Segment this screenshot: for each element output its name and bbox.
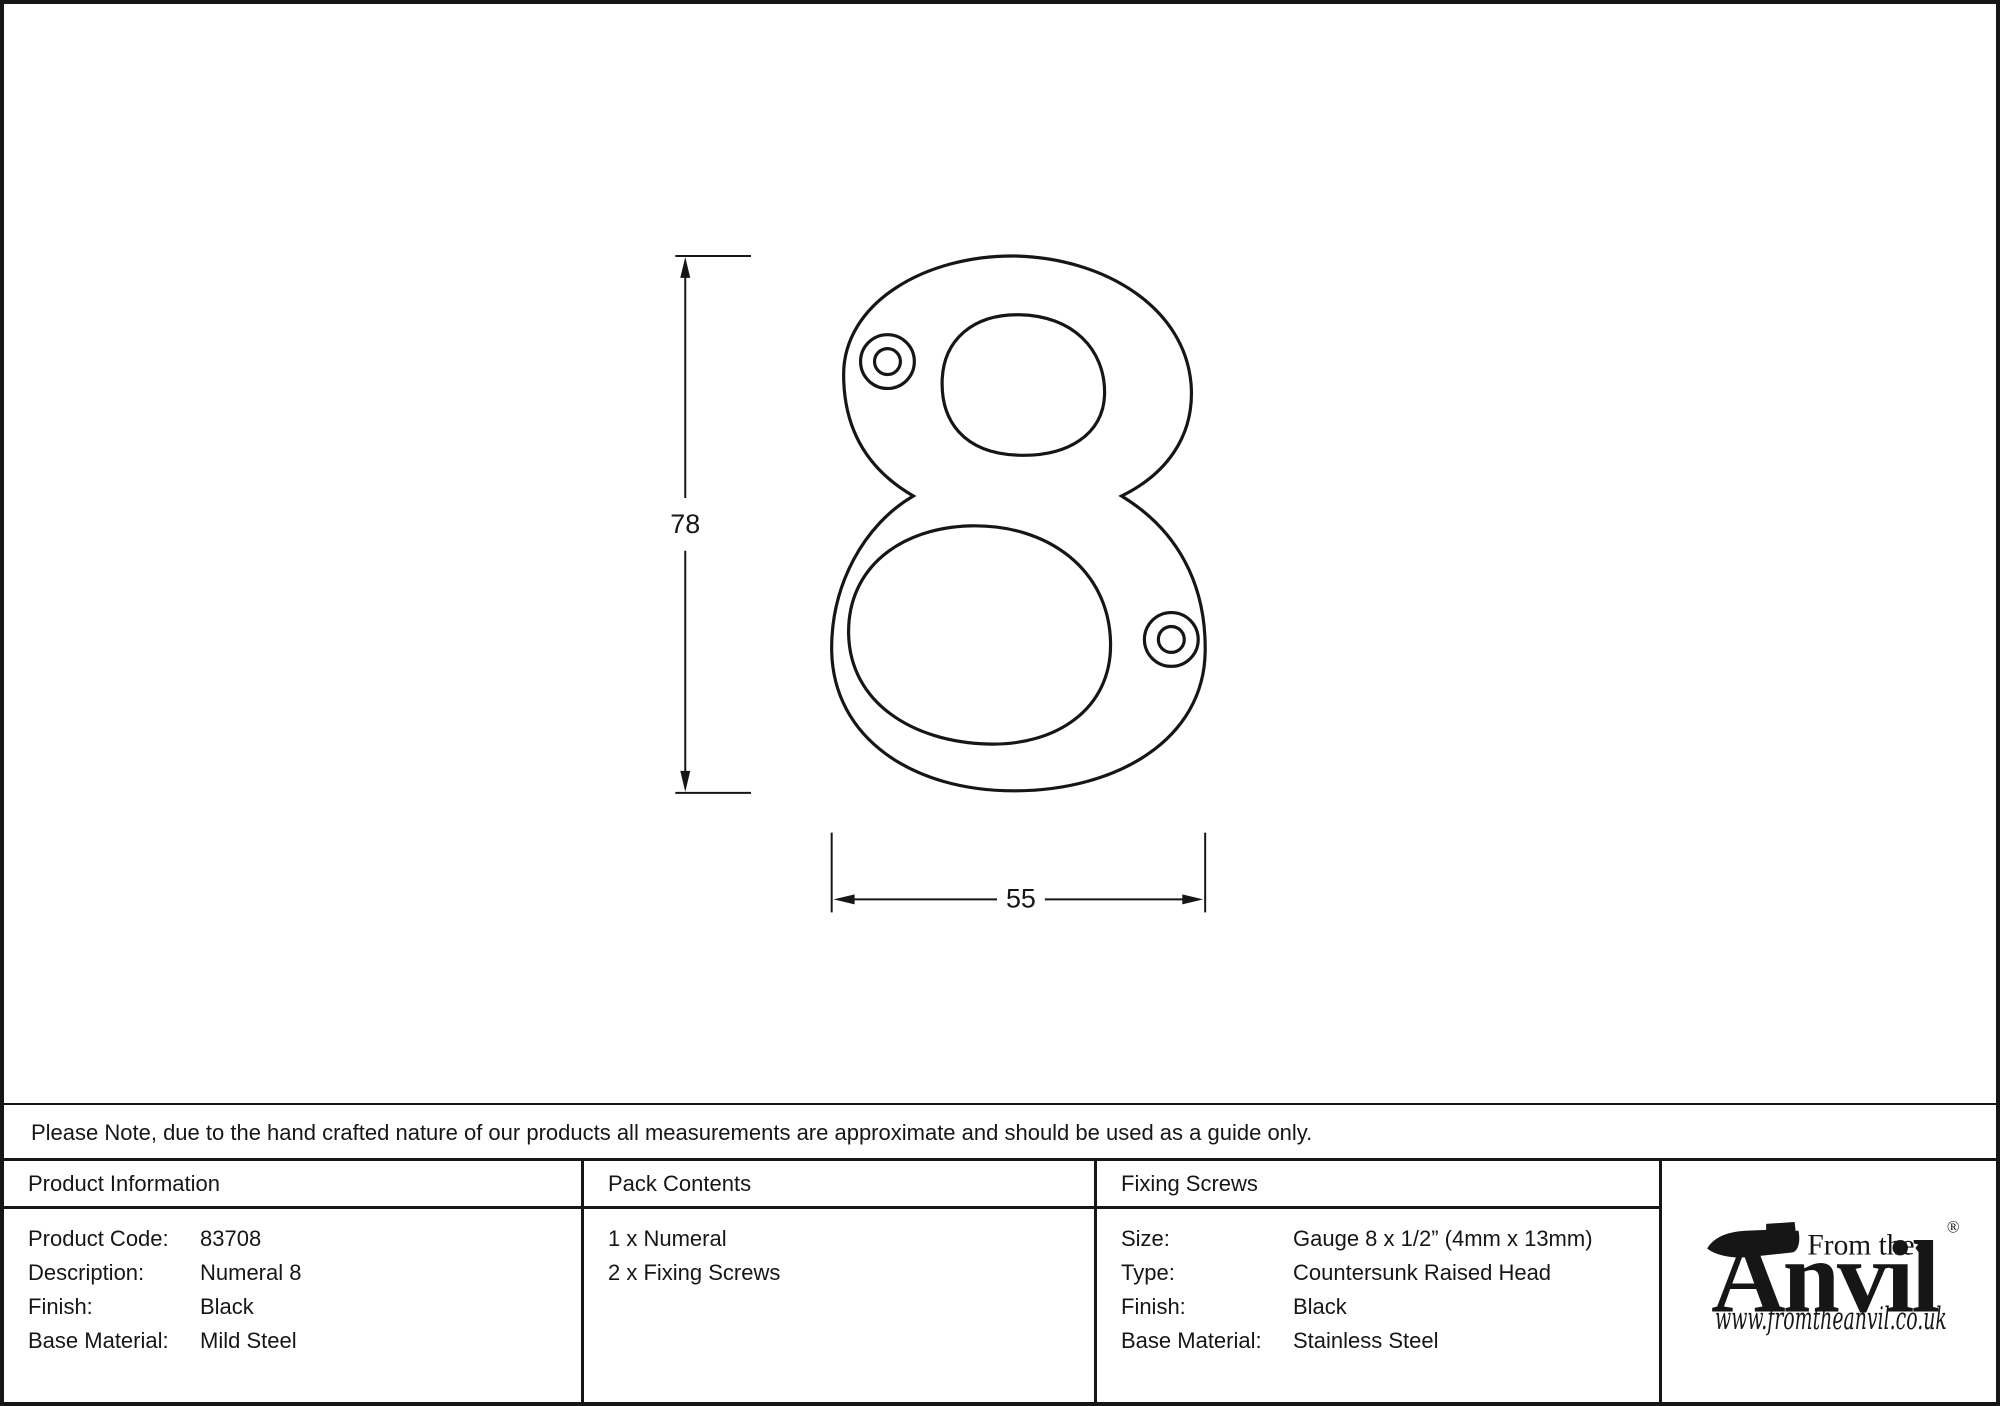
row-value: Mild Steel xyxy=(200,1328,297,1354)
table-row: Finish: Black xyxy=(28,1290,581,1324)
logo-website-text: www.fromtheanvil.co.uk xyxy=(1715,1302,1947,1337)
list-item: 2 x Fixing Screws xyxy=(608,1256,1094,1290)
list-item: 1 x Numeral xyxy=(608,1222,1094,1256)
product-information-column: Product Information Product Code: 83708 … xyxy=(4,1161,581,1402)
row-value: Black xyxy=(1293,1294,1347,1320)
height-dimension: 78 xyxy=(670,256,751,793)
row-value: 83708 xyxy=(200,1226,261,1252)
row-value: Stainless Steel xyxy=(1293,1328,1439,1354)
table-row: Type: Countersunk Raised Head xyxy=(1121,1256,1659,1290)
row-label: Base Material: xyxy=(1121,1328,1293,1354)
row-label: Description: xyxy=(28,1260,200,1286)
table-row: Base Material: Mild Steel xyxy=(28,1324,581,1358)
table-row: Product Code: 83708 xyxy=(28,1222,581,1256)
logo-prefix-text: From the xyxy=(1807,1229,1914,1261)
row-label: Finish: xyxy=(1121,1294,1293,1320)
spec-table: Product Information Product Code: 83708 … xyxy=(4,1158,1996,1402)
note-text: Please Note, due to the hand crafted nat… xyxy=(31,1120,1312,1145)
height-dimension-label: 78 xyxy=(670,509,700,539)
row-label: Finish: xyxy=(28,1294,200,1320)
from-the-anvil-logo: Anvil From the ♦ ® www.fromtheanvil.co.u… xyxy=(1662,1164,1996,1400)
width-dimension: 55 xyxy=(832,833,1205,914)
width-dimension-label: 55 xyxy=(1006,883,1036,913)
row-label: Size: xyxy=(1121,1226,1293,1252)
diamond-icon: ♦ xyxy=(1914,1232,1927,1261)
pack-contents-column: Pack Contents 1 x Numeral 2 x Fixing Scr… xyxy=(581,1161,1094,1402)
registered-mark: ® xyxy=(1947,1217,1960,1236)
row-value: Black xyxy=(200,1294,254,1320)
table-row: Description: Numeral 8 xyxy=(28,1256,581,1290)
row-label: Product Code: xyxy=(28,1226,200,1252)
top-screw-hole-icon xyxy=(861,335,915,389)
table-row: Base Material: Stainless Steel xyxy=(1121,1324,1659,1358)
row-value: Gauge 8 x 1/2” (4mm x 13mm) xyxy=(1293,1226,1593,1252)
row-label: Base Material: xyxy=(28,1328,200,1354)
table-row: Finish: Black xyxy=(1121,1290,1659,1324)
row-value: Numeral 8 xyxy=(200,1260,301,1286)
bottom-screw-hole-icon xyxy=(1144,613,1198,667)
note-bar: Please Note, due to the hand crafted nat… xyxy=(4,1103,1996,1158)
fixing-screws-header: Fixing Screws xyxy=(1097,1161,1659,1209)
row-value: Countersunk Raised Head xyxy=(1293,1260,1551,1286)
row-label: Type: xyxy=(1121,1260,1293,1286)
table-row: Size: Gauge 8 x 1/2” (4mm x 13mm) xyxy=(1121,1222,1659,1256)
pack-contents-header: Pack Contents xyxy=(584,1161,1094,1209)
fixing-screws-column: Fixing Screws Size: Gauge 8 x 1/2” (4mm … xyxy=(1094,1161,1659,1402)
product-spec-sheet: 78 55 Please Note, due to the hand craft… xyxy=(0,0,2000,1406)
technical-drawing: 78 55 xyxy=(4,4,1996,1103)
product-information-header: Product Information xyxy=(4,1161,581,1209)
brand-logo-cell: Anvil From the ♦ ® www.fromtheanvil.co.u… xyxy=(1659,1161,1996,1402)
